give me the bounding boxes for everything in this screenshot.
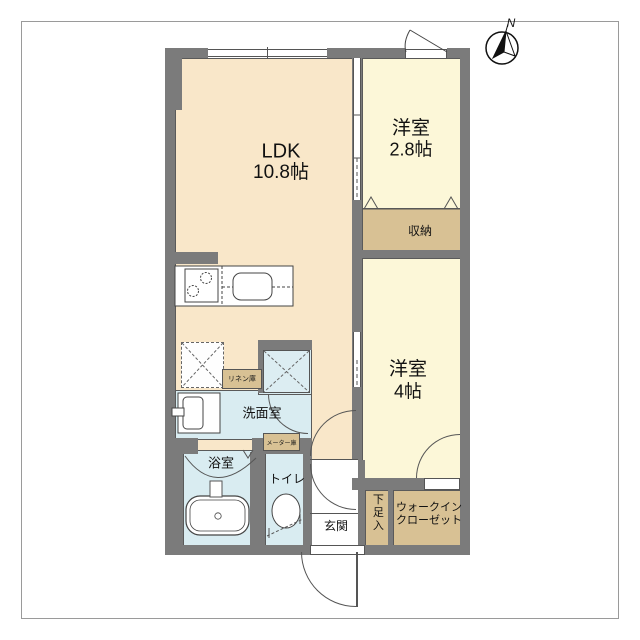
closet-folding-door <box>362 197 460 209</box>
ldk-size-label: 10.8帖 <box>253 162 309 184</box>
wic-label-line1: ウォークイン <box>396 502 462 515</box>
floor-plan: リネン庫 メーター庫 <box>0 0 640 640</box>
ldk-name-label: LDK <box>262 141 301 164</box>
closet-label: 収納 <box>408 225 432 239</box>
genkan-label: 玄関 <box>324 520 348 534</box>
washroom-label: 洗面室 <box>242 407 281 422</box>
toilet-label: トイレ <box>269 473 305 487</box>
bedroom1-name-label: 洋室 <box>392 118 430 140</box>
wic-label-line2: クローゼット <box>396 515 462 528</box>
bedroom1-size-label: 2.8帖 <box>389 140 432 161</box>
kitchen-sink-icon <box>233 273 272 300</box>
compass-north-label: N <box>507 17 516 31</box>
bath-label: 浴室 <box>208 457 234 472</box>
toilet-bowl-icon <box>267 494 303 538</box>
washing-machine-x-mark <box>264 351 309 392</box>
sliding-track-dashes <box>353 115 361 386</box>
fixtures-layer <box>0 0 640 640</box>
refrigerator-x-mark <box>182 343 223 387</box>
bathtub-icon <box>186 496 249 535</box>
bedroom2-name-label: 洋室 <box>389 359 427 381</box>
bedroom2-size-label: 4帖 <box>394 382 422 403</box>
balcony-door-swing <box>405 30 447 52</box>
kitchen-counter <box>175 266 293 306</box>
shoe-storage-label: 下足入 <box>371 494 384 533</box>
vanity-basin-icon <box>172 393 220 433</box>
stove-icon <box>185 269 218 302</box>
